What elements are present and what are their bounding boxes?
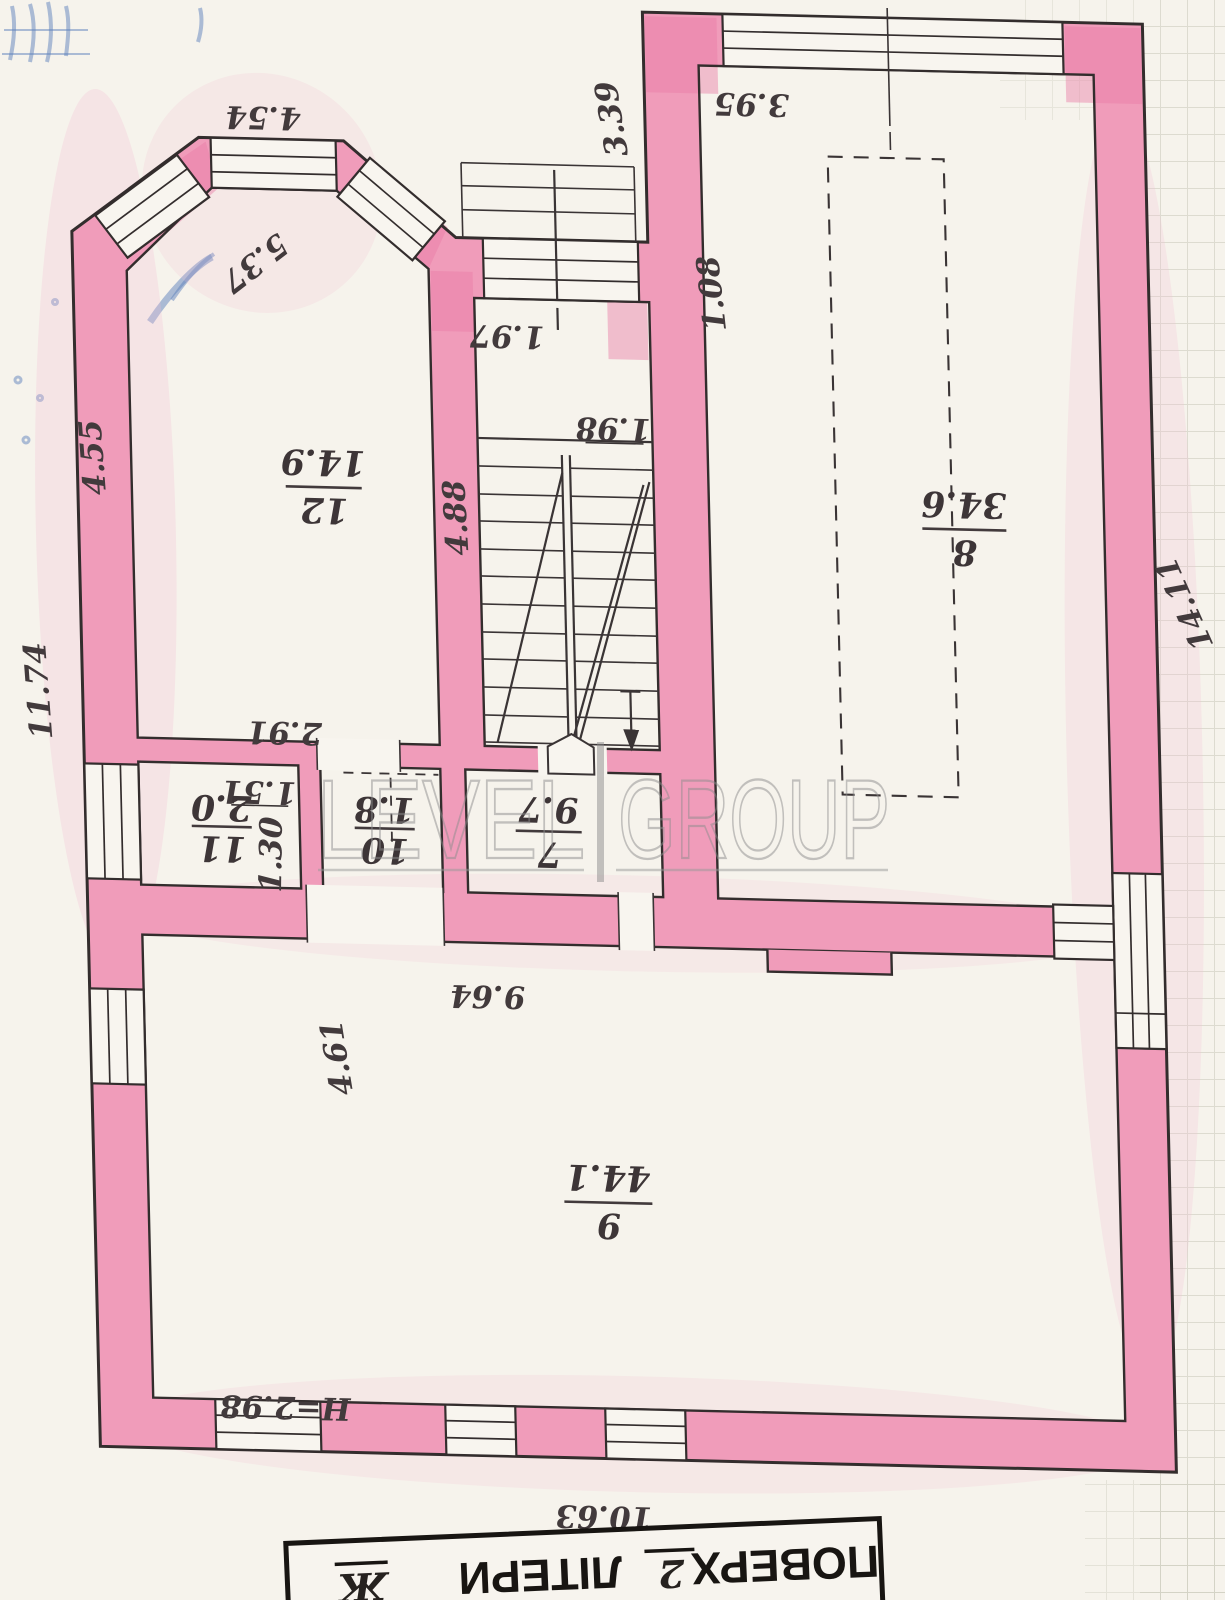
dimension-label: 9.64 xyxy=(449,977,525,1015)
window-bottom-2 xyxy=(445,1405,516,1457)
window-room9-right xyxy=(1112,873,1166,1049)
title-letter-label: ЛІТЕРИ xyxy=(457,1546,623,1600)
dimension-label: 2.91 xyxy=(246,713,323,751)
watermark-word-right: GROUP xyxy=(618,757,890,882)
svg-text:8: 8 xyxy=(952,531,978,573)
window-midwall xyxy=(1053,905,1114,960)
svg-text:34.6: 34.6 xyxy=(921,483,1007,526)
dimension-label: 4.54 xyxy=(225,98,301,136)
floor-plan-svg: 4.54 5.37 4.55 11.74 2.91 1.51 1.30 1.97… xyxy=(0,0,1225,1600)
dimension-label: 4.88 xyxy=(436,480,476,556)
window-room9-left xyxy=(90,988,146,1084)
watermark: LEVEL GROUP xyxy=(317,742,890,882)
wall-notch xyxy=(767,950,892,975)
dimension-label: 1.30 xyxy=(253,815,290,893)
dimension-label: 4.55 xyxy=(72,419,114,496)
svg-text:9: 9 xyxy=(596,1204,621,1246)
title-letter-value: Ж xyxy=(336,1563,392,1600)
graph-grid-bottom-right xyxy=(1085,1480,1225,1600)
svg-text:2.0: 2.0 xyxy=(190,786,253,828)
dimension-label: H=2.98 xyxy=(220,1387,353,1426)
window-room8-top xyxy=(722,14,1063,74)
dimension-label: 1.97 xyxy=(468,317,545,355)
svg-text:12: 12 xyxy=(299,489,349,531)
window-room11-left xyxy=(84,763,141,879)
dimension-label: 11.74 xyxy=(17,642,60,740)
window-stair-hall xyxy=(483,238,639,302)
room-label-11: 11 2.0 xyxy=(190,786,254,869)
dimension-label: 3.95 xyxy=(713,85,789,123)
watermark-word-left: LEVEL xyxy=(317,757,585,882)
dimension-label: 1.98 xyxy=(575,409,651,447)
svg-text:44.1: 44.1 xyxy=(565,1156,651,1199)
title-floor-value: 2 xyxy=(657,1551,686,1597)
svg-text:14.9: 14.9 xyxy=(280,440,366,483)
title-floor-label: ПОВЕРХ xyxy=(690,1536,880,1595)
window-bottom-3 xyxy=(605,1408,686,1460)
watermark-divider xyxy=(597,742,604,882)
window-bay-top xyxy=(211,138,337,191)
svg-text:11: 11 xyxy=(197,827,247,869)
scanned-floor-plan-page: 4.54 5.37 4.55 11.74 2.91 1.51 1.30 1.97… xyxy=(0,0,1225,1600)
